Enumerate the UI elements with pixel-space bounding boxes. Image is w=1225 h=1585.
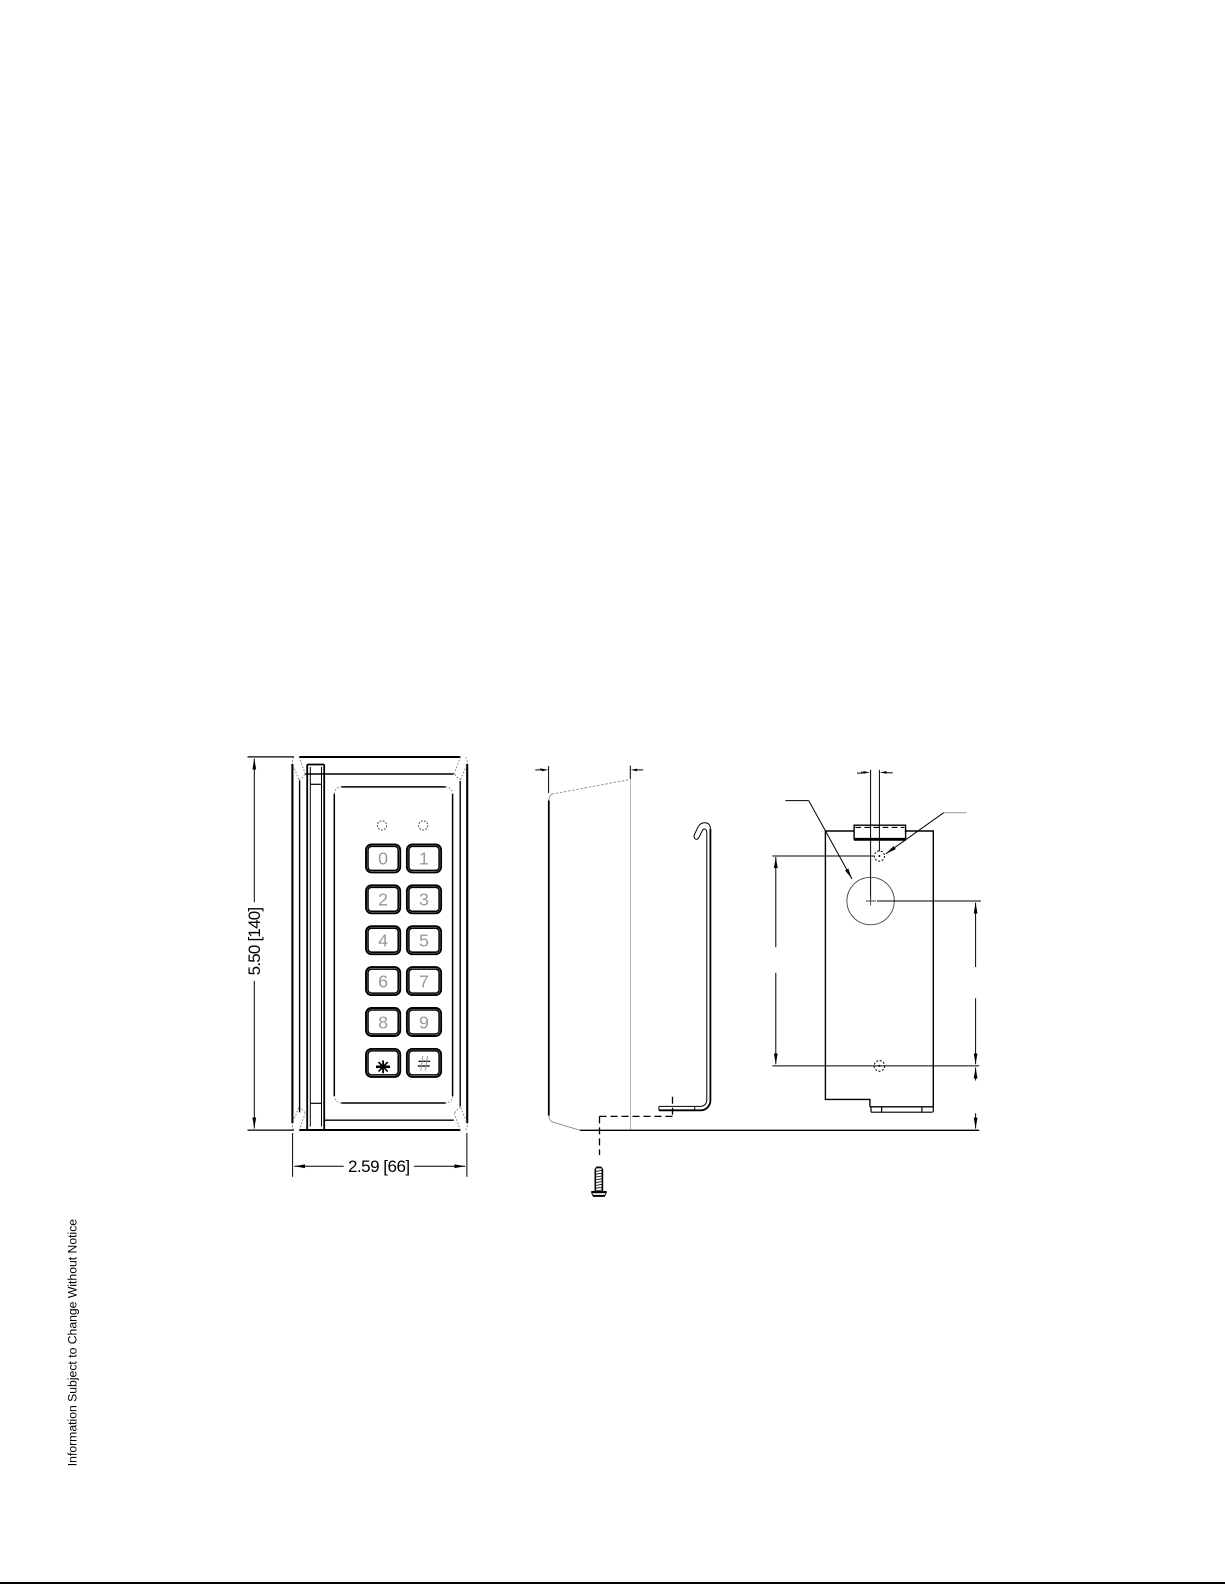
svg-text:2: 2	[378, 890, 388, 910]
svg-text:8: 8	[378, 1012, 388, 1032]
svg-text:4: 4	[378, 931, 388, 951]
svg-text:1: 1	[419, 849, 429, 869]
svg-text:6: 6	[378, 971, 388, 991]
svg-text:5.50 [140]: 5.50 [140]	[245, 908, 264, 976]
svg-text:7: 7	[419, 971, 429, 991]
svg-text:0: 0	[378, 849, 388, 869]
svg-text:3: 3	[419, 890, 429, 910]
svg-text:5: 5	[419, 931, 429, 951]
svg-text:9: 9	[419, 1012, 429, 1032]
svg-text:Information Subject to Change: Information Subject to Change Without No…	[66, 1219, 80, 1466]
svg-text:2.59 [66]: 2.59 [66]	[348, 1157, 410, 1176]
